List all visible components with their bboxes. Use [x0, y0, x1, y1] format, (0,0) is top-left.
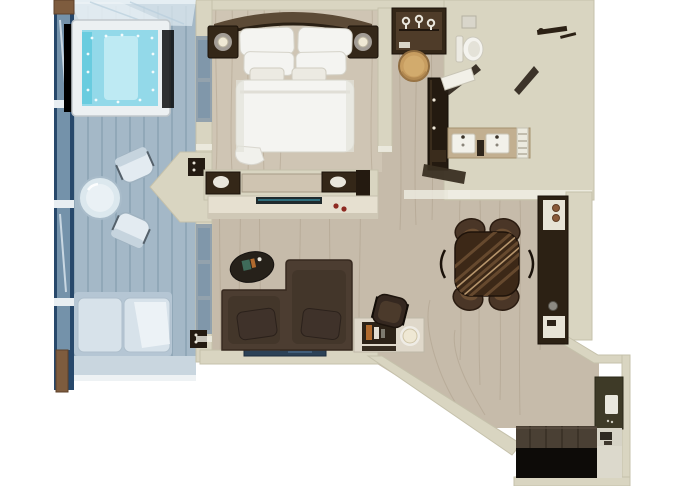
hot-tub	[64, 20, 174, 116]
desk-tray	[362, 346, 396, 351]
railing-bar	[54, 298, 74, 306]
living-window-glass	[198, 300, 210, 330]
railing-bar	[54, 200, 74, 208]
dining-right-wall	[566, 192, 592, 340]
ice-bucket	[549, 302, 558, 311]
book	[374, 327, 379, 339]
decanter	[341, 206, 346, 211]
toilet	[456, 36, 483, 62]
double-vanity	[448, 128, 530, 158]
bar-item	[547, 320, 556, 326]
cistern-shelf	[462, 16, 476, 28]
entry-bottom-wall	[514, 477, 630, 486]
decor-bowl	[330, 177, 346, 188]
railing-glass-panel	[57, 306, 70, 350]
bathroom-block-wall	[444, 0, 594, 200]
speaker-stack	[188, 158, 205, 176]
hot-tub-wood-trim	[162, 30, 174, 108]
balcony-outer-lip	[58, 375, 196, 381]
bar-cabinet	[538, 196, 568, 344]
lounge-sofa	[74, 292, 172, 356]
balcony-deck-edge	[58, 356, 196, 378]
floor-plan-canvas	[0, 0, 680, 486]
desk-lamp	[403, 329, 417, 343]
door-plate	[605, 395, 618, 414]
corner-post	[56, 350, 68, 392]
lounge-cushion	[78, 298, 122, 352]
entry-shelf-item	[604, 441, 612, 445]
vanity-stool	[399, 51, 429, 81]
duvet-shade	[346, 80, 354, 152]
hot-tub-water-light	[104, 36, 138, 100]
closet-box	[399, 42, 410, 48]
bedside-lamp	[218, 37, 228, 47]
vanity-bin	[477, 140, 484, 156]
door-mat	[516, 448, 597, 478]
book	[366, 325, 372, 340]
bedroom-right-wall	[378, 8, 392, 152]
bedside-lamp	[358, 37, 368, 47]
entry-shelf-item	[600, 432, 612, 440]
sofa-pillow	[300, 308, 341, 340]
room-divider	[204, 170, 378, 219]
towel-ladder	[517, 128, 528, 158]
bar-shelf	[543, 316, 565, 338]
railing-glass-panel	[57, 108, 70, 200]
tv-console-face	[208, 213, 378, 219]
decor-bowl	[213, 176, 229, 188]
suite-floor-plan	[0, 0, 680, 486]
bedroom-window-glass	[198, 82, 210, 118]
living-window-glass	[198, 228, 210, 260]
hot-tub-seat	[82, 32, 92, 104]
duvet-shade	[236, 80, 244, 152]
dresser-top	[242, 174, 322, 192]
corner-post	[54, 0, 74, 14]
sofa-pillow	[236, 307, 278, 340]
entry-side-floor	[597, 446, 622, 478]
bar-item	[553, 205, 560, 212]
book	[381, 329, 385, 338]
bar-item	[553, 215, 560, 222]
nightstand-left	[208, 26, 238, 58]
living-window-glass	[198, 264, 210, 296]
closet	[392, 8, 446, 54]
tall-cabinet	[428, 78, 448, 170]
dark-threshold	[516, 426, 597, 450]
divider-end-cabinet	[356, 170, 370, 198]
decanter	[333, 203, 338, 208]
